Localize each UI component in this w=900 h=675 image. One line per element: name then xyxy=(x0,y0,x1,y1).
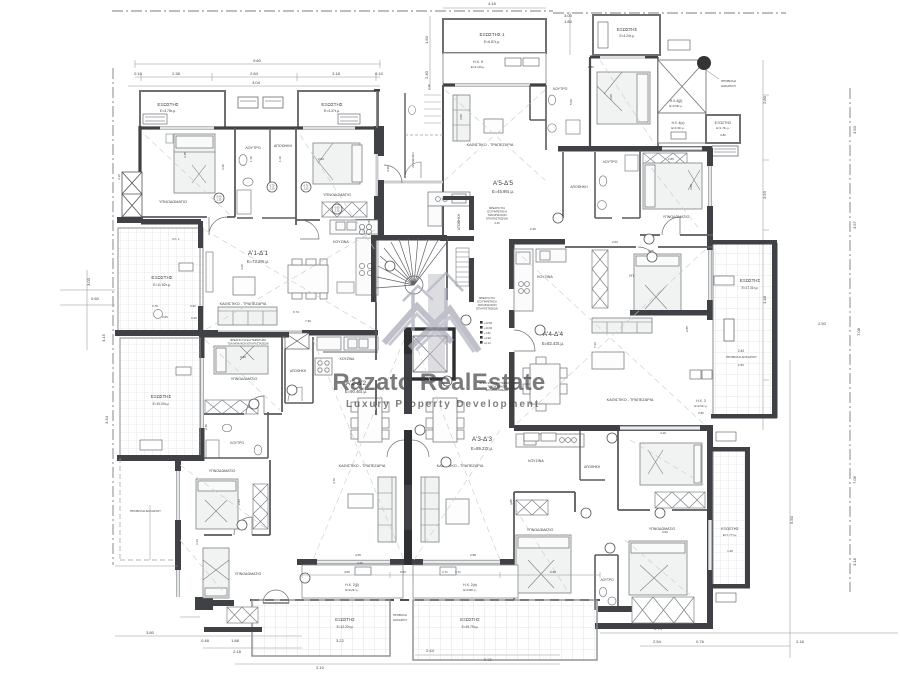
svg-text:1.88: 1.88 xyxy=(231,638,240,643)
svg-text:ΑΠΟΘΗΚΗ: ΑΠΟΘΗΚΗ xyxy=(457,213,461,230)
svg-text:Ε=2.61τ.μ.: Ε=2.61τ.μ. xyxy=(694,404,707,408)
svg-text:Ε=3.63τ.μ.: Ε=3.63τ.μ. xyxy=(669,104,682,108)
svg-text:Η.Χ. 4(α): Η.Χ. 4(α) xyxy=(672,121,685,125)
svg-text:Luxury Property Development: Luxury Property Development xyxy=(346,399,540,410)
svg-text:ΠΡΟΒΟΛΗ: ΠΡΟΒΟΛΗ xyxy=(721,79,736,83)
svg-text:4.16: 4.16 xyxy=(488,1,497,6)
svg-text:0.46: 0.46 xyxy=(191,316,197,320)
svg-text:ΑΠΟΘΗΚΗ: ΑΠΟΘΗΚΗ xyxy=(570,185,588,189)
svg-text:3.18: 3.18 xyxy=(852,557,857,566)
svg-text:3.88: 3.88 xyxy=(689,184,693,190)
svg-text:2.10: 2.10 xyxy=(316,665,325,670)
svg-text:ΕΞΩΣΤΗΣ 1: ΕΞΩΣΤΗΣ 1 xyxy=(479,32,505,37)
svg-text:ΕΞΩΣΤΗΣ: ΕΞΩΣΤΗΣ xyxy=(335,617,355,622)
svg-text:+4.98: +4.98 xyxy=(484,336,491,340)
svg-text:Ε=4.78τ.μ.: Ε=4.78τ.μ. xyxy=(160,109,176,113)
svg-text:Ε=4.37τ.μ.: Ε=4.37τ.μ. xyxy=(324,109,340,113)
svg-text:ΕΞΥΠΗΡΕΤΗΣΗ: ΕΞΥΠΗΡΕΤΗΣΗ xyxy=(487,210,506,214)
svg-text:ΕΓΚΑΤΑΣΤΑΣΕΩΝ: ΕΓΚΑΤΑΣΤΑΣΕΩΝ xyxy=(476,307,498,311)
svg-text:Ε=6.87τ.μ.: Ε=6.87τ.μ. xyxy=(484,40,500,44)
svg-text:ΥΠΝΟΔΩΜΑΤΙΟ: ΥΠΝΟΔΩΜΑΤΙΟ xyxy=(209,469,236,473)
svg-text:ΕΞΩΣΤΗΣ: ΕΞΩΣΤΗΣ xyxy=(721,527,739,531)
svg-text:Ε=17.31τ.μ.: Ε=17.31τ.μ. xyxy=(742,286,759,290)
svg-text:5.00: 5.00 xyxy=(569,99,573,105)
svg-text:3.18: 3.18 xyxy=(332,71,341,76)
svg-text:Ε=1.74τ.μ.: Ε=1.74τ.μ. xyxy=(716,126,729,130)
svg-text:+13.50: +13.50 xyxy=(484,321,493,325)
svg-text:+7.82: +7.82 xyxy=(484,331,491,335)
svg-text:2.80: 2.80 xyxy=(588,65,594,69)
svg-text:0.98: 0.98 xyxy=(550,570,556,574)
svg-text:ΛΟΥΤΡΟ: ΛΟΥΤΡΟ xyxy=(600,578,614,582)
svg-text:Ε=82.43τ.μ.: Ε=82.43τ.μ. xyxy=(542,341,564,346)
svg-text:ΕΞΩΣΤΗΣ: ΕΞΩΣΤΗΣ xyxy=(460,617,480,622)
svg-text:3.03: 3.03 xyxy=(86,277,91,286)
svg-text:2.83: 2.83 xyxy=(237,499,241,505)
svg-text:3.00: 3.00 xyxy=(318,157,324,161)
svg-text:0.48: 0.48 xyxy=(201,638,210,643)
svg-text:0.76: 0.76 xyxy=(696,639,705,644)
svg-text:4.20: 4.20 xyxy=(386,166,390,172)
svg-text:ΦΡΕΑΤΙΟ ΓΙΑ: ΦΡΕΑΤΙΟ ΓΙΑ xyxy=(479,296,495,300)
svg-text:3.05: 3.05 xyxy=(509,499,513,505)
svg-text:ΑΠΟΘΗΚΗ: ΑΠΟΘΗΚΗ xyxy=(584,465,601,469)
svg-text:2.40: 2.40 xyxy=(427,84,431,90)
svg-text:Ε=11.52τ.μ.: Ε=11.52τ.μ. xyxy=(153,283,171,287)
svg-text:ΦΡΕΑΤΙΟ ΓΙΑ: ΦΡΕΑΤΙΟ ΓΙΑ xyxy=(489,206,505,210)
svg-text:0.10: 0.10 xyxy=(134,71,143,76)
svg-text:ΠΡΟΒΟΛΗ ΔΟΚΑΡΙΟΥ: ΠΡΟΒΟΛΗ ΔΟΚΑΡΙΟΥ xyxy=(726,355,757,359)
svg-text:Ε=9.24τ.μ.: Ε=9.24τ.μ. xyxy=(345,588,358,592)
svg-text:ΕΞΩΣΤΗΣ: ΕΞΩΣΤΗΣ xyxy=(617,27,638,32)
svg-text:3.71: 3.71 xyxy=(455,570,461,574)
svg-text:9.60: 9.60 xyxy=(253,58,262,63)
svg-text:ΕΞΩΣΤΗΣ: ΕΞΩΣΤΗΣ xyxy=(157,102,178,107)
svg-text:2.46: 2.46 xyxy=(494,221,500,225)
svg-text:3.04: 3.04 xyxy=(252,80,261,85)
svg-text:3.53: 3.53 xyxy=(762,190,767,199)
svg-text:Η.Χ.4(β): Η.Χ.4(β) xyxy=(670,99,683,103)
svg-text:2.18: 2.18 xyxy=(233,649,242,654)
svg-text:3.20: 3.20 xyxy=(221,164,225,170)
svg-text:Ε=89.23τ.μ.: Ε=89.23τ.μ. xyxy=(471,446,493,451)
svg-text:ΛΟΥΤΡΟ: ΛΟΥΤΡΟ xyxy=(230,441,244,445)
svg-text:2.50: 2.50 xyxy=(738,363,744,367)
svg-text:3.70: 3.70 xyxy=(152,304,158,308)
svg-text:Η.Χ. 5: Η.Χ. 5 xyxy=(473,60,483,64)
svg-text:4.70: 4.70 xyxy=(332,478,336,484)
svg-text:2.03: 2.03 xyxy=(612,240,618,244)
svg-text:1.10: 1.10 xyxy=(278,156,282,162)
svg-text:1.50: 1.50 xyxy=(424,35,429,44)
svg-text:Ε=3.33τ.μ.: Ε=3.33τ.μ. xyxy=(671,126,684,130)
svg-text:Ε=3.19τ.μ.: Ε=3.19τ.μ. xyxy=(471,65,485,69)
svg-text:3.06: 3.06 xyxy=(162,315,168,319)
svg-text:ΑΠΟΘΗΚΗ: ΑΠΟΘΗΚΗ xyxy=(274,144,293,148)
svg-text:2.16: 2.16 xyxy=(796,639,805,644)
svg-text:Ε=12.20τ.μ.: Ε=12.20τ.μ. xyxy=(337,625,354,629)
svg-text:4.16: 4.16 xyxy=(660,431,666,435)
svg-text:1.80: 1.80 xyxy=(564,19,573,24)
svg-text:ΚΟΥΖΙΝΑ: ΚΟΥΖΙΝΑ xyxy=(340,357,355,361)
svg-text:ΤΩΝ ΜΠΑΛΚΟΝ: ΤΩΝ ΜΠΑΛΚΟΝ xyxy=(477,303,496,307)
svg-text:7.36: 7.36 xyxy=(593,342,597,348)
svg-text:ΔΟΚΑΡΙΟΥ: ΔΟΚΑΡΙΟΥ xyxy=(721,84,736,88)
svg-text:4.25: 4.25 xyxy=(355,553,361,557)
svg-text:2.85: 2.85 xyxy=(668,157,674,161)
svg-text:Ε=19.79τ.μ.: Ε=19.79τ.μ. xyxy=(462,625,479,629)
svg-text:3.00: 3.00 xyxy=(662,530,668,534)
svg-text:3.57: 3.57 xyxy=(852,220,857,229)
svg-text:4.15: 4.15 xyxy=(101,333,106,342)
svg-text:2.20: 2.20 xyxy=(270,188,275,191)
svg-text:Ε=9.80τ.μ.: Ε=9.80τ.μ. xyxy=(463,588,476,592)
svg-text:ΕΞΩΣΤΗΣ: ΕΞΩΣΤΗΣ xyxy=(151,394,172,399)
svg-text:ΛΟΥΤΡΟ: ΛΟΥΤΡΟ xyxy=(553,87,568,91)
svg-text:ΛΟΥΤΡΟ: ΛΟΥΤΡΟ xyxy=(603,160,618,164)
svg-text:2.46: 2.46 xyxy=(530,227,536,231)
svg-text:ΚΑΘΙΣΤΙΚΟ - ΤΡΑΠΕΖΑΡΙΑ: ΚΑΘΙΣΤΙΚΟ - ΤΡΑΠΕΖΑΡΙΑ xyxy=(607,398,654,402)
svg-text:0.80: 0.80 xyxy=(720,133,726,137)
svg-text:0.80: 0.80 xyxy=(698,411,704,415)
svg-text:ΥΠΝΟΔΩΜΑΤΙΟ: ΥΠΝΟΔΩΜΑΤΙΟ xyxy=(235,572,262,576)
svg-text:3.30: 3.30 xyxy=(240,355,246,359)
svg-text:ΚΟΥΖΙΝΑ: ΚΟΥΖΙΝΑ xyxy=(537,275,553,279)
svg-text:ΚΛ. 1: ΚΛ. 1 xyxy=(172,237,180,241)
svg-text:2.20: 2.20 xyxy=(335,210,340,213)
svg-text:2.84: 2.84 xyxy=(250,71,259,76)
svg-text:4.15: 4.15 xyxy=(117,174,121,180)
svg-text:2.50: 2.50 xyxy=(818,321,827,326)
svg-text:ΑΠΟΘΗΚΗ: ΑΠΟΘΗΚΗ xyxy=(290,369,307,373)
svg-text:Η.Χ. 2(α): Η.Χ. 2(α) xyxy=(463,583,477,587)
svg-text:ΥΠΝΟΔΩΜΑΤΙΟ: ΥΠΝΟΔΩΜΑΤΙΟ xyxy=(527,528,554,532)
svg-text:Η.Χ. 3: Η.Χ. 3 xyxy=(696,399,706,403)
svg-text:3.80: 3.80 xyxy=(146,630,155,635)
svg-text:1.40: 1.40 xyxy=(249,156,253,162)
svg-text:3.08: 3.08 xyxy=(609,94,613,100)
svg-text:ΕΞΩΣΤΗΣ: ΕΞΩΣΤΗΣ xyxy=(715,121,732,125)
svg-text:2.20: 2.20 xyxy=(217,199,222,202)
svg-text:ΤΩΝ ΜΠΑΛΚΟΝ ΕΓΚΑΤΑΣΤΑΣΕΩΝ: ΤΩΝ ΜΠΑΛΚΟΝ ΕΓΚΑΤΑΣΤΑΣΕΩΝ xyxy=(227,342,268,346)
svg-text:0.60: 0.60 xyxy=(91,296,100,301)
svg-text:2.80: 2.80 xyxy=(762,95,767,104)
svg-text:3.45: 3.45 xyxy=(183,152,187,158)
svg-text:2.85: 2.85 xyxy=(685,326,689,332)
svg-text:ΚΟΥΖΙΝΑ: ΚΟΥΖΙΝΑ xyxy=(333,240,349,244)
svg-text:Ε=4.24τ.μ.: Ε=4.24τ.μ. xyxy=(619,34,634,38)
svg-text:4.05: 4.05 xyxy=(344,570,350,574)
svg-text:ΛΟΥΤΡΟ: ΛΟΥΤΡΟ xyxy=(245,146,261,150)
svg-text:ΦΡΕΑΤΙΟ ΓΙΑ ΕΞΥΠΗΡΕΤΗΣΗ: ΦΡΕΑΤΙΟ ΓΙΑ ΕΞΥΠΗΡΕΤΗΣΗ xyxy=(230,338,266,342)
svg-text:ΕΓΚΑΤΑΣΤΑΣΕΩΝ: ΕΓΚΑΤΑΣΤΑΣΕΩΝ xyxy=(486,217,508,221)
svg-text:Α'1-Δ'1: Α'1-Δ'1 xyxy=(248,250,269,257)
svg-text:0.36: 0.36 xyxy=(190,304,196,308)
svg-text:3.00: 3.00 xyxy=(564,13,573,18)
svg-text:3.50: 3.50 xyxy=(459,114,463,120)
svg-text:4.23: 4.23 xyxy=(357,561,363,565)
svg-text:Α'5-Δ'5: Α'5-Δ'5 xyxy=(493,180,514,187)
svg-text:0.55: 0.55 xyxy=(400,570,406,574)
svg-text:2.40: 2.40 xyxy=(424,70,429,79)
svg-text:2.40: 2.40 xyxy=(738,349,744,353)
svg-text:3.50: 3.50 xyxy=(852,125,857,134)
svg-text:ΕΞΩΣΤΗΣ: ΕΞΩΣΤΗΣ xyxy=(740,278,761,283)
svg-text:7.08: 7.08 xyxy=(856,327,861,336)
svg-text:Ε=7.77τ.μ.: Ε=7.77τ.μ. xyxy=(723,533,737,537)
svg-text:6.74: 6.74 xyxy=(293,310,299,314)
svg-text:ΚΑΘΙΣΤΙΚΟ - ΤΡΑΠΕΖΑΡΙΑ: ΚΑΘΙΣΤΙΚΟ - ΤΡΑΠΕΖΑΡΙΑ xyxy=(467,143,514,147)
svg-text:ΚΑΘΙΣΤΙΚΟ - ΤΡΑΠΕΖΑΡΙΑ: ΚΑΘΙΣΤΙΚΟ - ΤΡΑΠΕΖΑΡΙΑ xyxy=(339,464,386,468)
svg-text:ΕΞΥΠΗΡΕΤΗΣΗ: ΕΞΥΠΗΡΕΤΗΣΗ xyxy=(477,300,496,304)
svg-text:Α'4-Δ'4: Α'4-Δ'4 xyxy=(543,331,564,338)
svg-text:Razato RealEstate: Razato RealEstate xyxy=(332,369,545,396)
svg-text:ΥΠΝΟΔΩΜΑΤΙΟ: ΥΠΝΟΔΩΜΑΤΙΟ xyxy=(159,200,187,204)
svg-text:ΠΡΟΒΟΛΗ: ΠΡΟΒΟΛΗ xyxy=(393,613,407,617)
svg-text:Ε=10.03τ.μ.: Ε=10.03τ.μ. xyxy=(153,402,170,406)
svg-text:ΥΠΝΟΔΩΜΑΤΙΟ: ΥΠΝΟΔΩΜΑΤΙΟ xyxy=(663,215,690,219)
svg-text:ΕΞΩΣΤΗΣ: ΕΞΩΣΤΗΣ xyxy=(151,275,172,280)
svg-text:ΥΠΝΟΔΩΜΑΤΙΟ: ΥΠΝΟΔΩΜΑΤΙΟ xyxy=(231,377,258,381)
svg-text:+10.66: +10.66 xyxy=(484,326,493,330)
svg-text:0.10: 0.10 xyxy=(375,71,384,76)
svg-text:3.05: 3.05 xyxy=(648,249,654,253)
svg-text:7.06: 7.06 xyxy=(852,475,857,484)
svg-text:ΚΑΘΙΣΤΙΚΟ - ΤΡΑΠΕΖΑΡΙΑ: ΚΑΘΙΣΤΙΚΟ - ΤΡΑΠΕΖΑΡΙΑ xyxy=(220,302,267,306)
svg-text:2.20: 2.20 xyxy=(304,188,309,191)
svg-text:3.71: 3.71 xyxy=(442,570,448,574)
svg-text:ΔΟΚΑΡΙΟΥ: ΔΟΚΑΡΙΟΥ xyxy=(393,618,407,622)
svg-text:Ε=45.95τ.μ.: Ε=45.95τ.μ. xyxy=(492,189,514,194)
svg-text:2.60: 2.60 xyxy=(204,424,208,430)
svg-text:1.40: 1.40 xyxy=(727,549,733,553)
svg-text:Α'3-Δ'3: Α'3-Δ'3 xyxy=(472,436,493,443)
svg-text:3.53: 3.53 xyxy=(367,219,371,225)
svg-text:2.98: 2.98 xyxy=(470,553,476,557)
svg-text:ΕΞΩΣΤΗΣ: ΕΞΩΣΤΗΣ xyxy=(321,102,342,107)
svg-text:2.54: 2.54 xyxy=(653,639,662,644)
svg-text:ΠΡΟΒΟΛΗ ΔΟΚΑΡΙΟΥ: ΠΡΟΒΟΛΗ ΔΟΚΑΡΙΟΥ xyxy=(130,509,161,513)
svg-text:ΥΠΝΟΔΩΜΑΤΙΟ: ΥΠΝΟΔΩΜΑΤΙΟ xyxy=(323,193,351,197)
svg-text:+2.14: +2.14 xyxy=(484,341,491,345)
svg-text:2.38: 2.38 xyxy=(172,71,181,76)
svg-text:ΚΟΥΖΙΝΑ: ΚΟΥΖΙΝΑ xyxy=(528,459,544,463)
svg-text:Η.Χ. 2(β): Η.Χ. 2(β) xyxy=(345,583,359,587)
svg-text:7.39: 7.39 xyxy=(305,319,311,323)
svg-text:3.34: 3.34 xyxy=(104,415,109,424)
svg-text:3.16: 3.16 xyxy=(195,539,199,545)
svg-text:ΤΩΝ ΜΠΑΛΚΟΝ: ΤΩΝ ΜΠΑΛΚΟΝ xyxy=(487,213,506,217)
svg-text:5.50: 5.50 xyxy=(789,515,794,524)
svg-text:4.25: 4.25 xyxy=(240,264,244,270)
